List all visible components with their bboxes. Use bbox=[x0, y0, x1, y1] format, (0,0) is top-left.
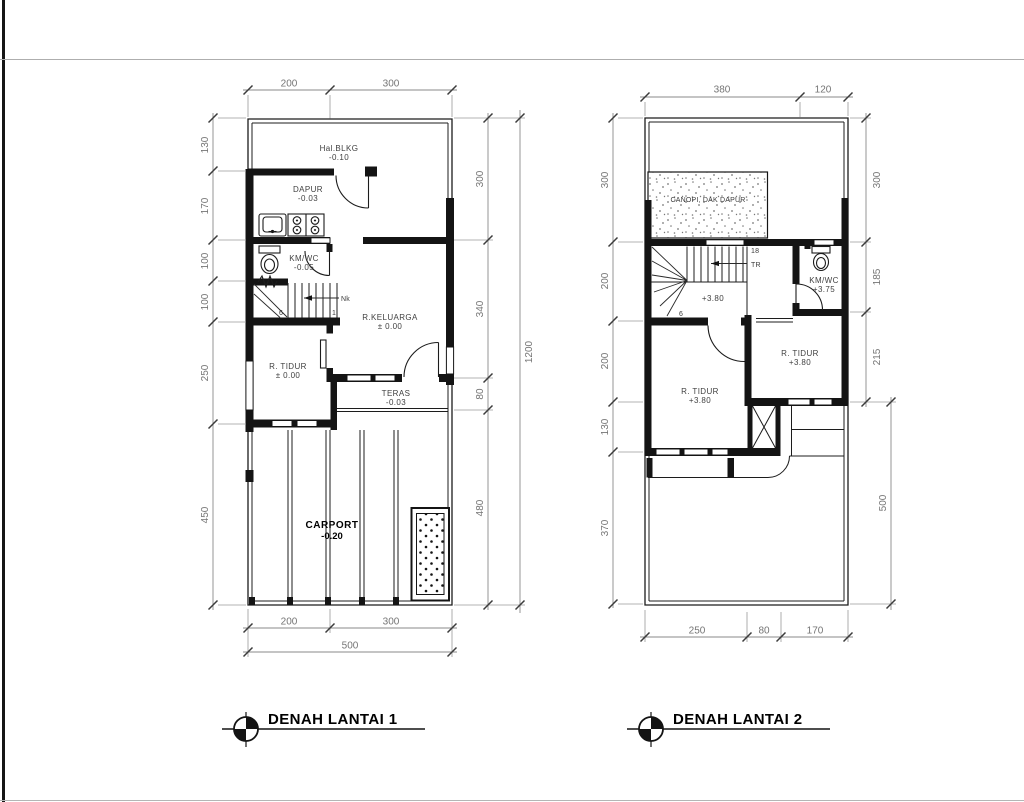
label-stair2-6: 6 bbox=[679, 311, 683, 318]
label-rtidur-right: R. TIDUR bbox=[781, 349, 819, 358]
datum-symbol-icon bbox=[639, 717, 663, 741]
dim-p1-left-130: 130 bbox=[200, 136, 211, 153]
plan1-stairs bbox=[254, 283, 339, 318]
plan2-dim-top: 380 120 bbox=[640, 85, 853, 118]
plan1-dim-left: 130 170 100 100 250 450 bbox=[200, 113, 246, 610]
sheet-border bbox=[0, 0, 1024, 802]
dim-p2-right-185: 185 bbox=[872, 268, 883, 285]
label-carport-level: -0.20 bbox=[321, 531, 343, 542]
plan2-title-block: DENAH LANTAI 2 bbox=[627, 711, 830, 747]
door-rtidur-left bbox=[708, 326, 745, 362]
stove-icon bbox=[288, 214, 324, 236]
label-carport: CARPORT bbox=[306, 520, 359, 531]
dim-p1-bottom-300: 300 bbox=[383, 617, 400, 628]
sink-icon bbox=[259, 214, 286, 236]
dim-p1-top-200: 200 bbox=[281, 79, 298, 90]
dim-p2-right-300: 300 bbox=[872, 171, 883, 188]
dim-p2-left-200b: 200 bbox=[600, 352, 611, 369]
label-hal-blkg: Hal.BLKG bbox=[320, 144, 359, 153]
label-kmwc2: KM/WC bbox=[809, 276, 839, 285]
plan1-dim-top: 200 300 bbox=[243, 79, 457, 119]
door-halblkg bbox=[336, 176, 369, 209]
shaft-cross bbox=[753, 406, 776, 448]
planter-box bbox=[412, 508, 450, 601]
label-stair-18: 18 bbox=[751, 248, 759, 255]
dim-p2-bottom-80: 80 bbox=[758, 626, 770, 637]
dim-p1-left-100a: 100 bbox=[200, 252, 211, 269]
dim-p1-right-300: 300 bbox=[475, 170, 486, 187]
plan1-dim-right: 300 340 80 480 1200 bbox=[454, 110, 535, 613]
dim-p2-bottom-170: 170 bbox=[807, 626, 824, 637]
dim-p2-right-500: 500 bbox=[878, 494, 889, 511]
floor-plan-2: CANOPI, DAK DAPUR KM/WC +3.75 R. TIDUR +… bbox=[600, 85, 896, 643]
label-rkeluarga-level: ± 0.00 bbox=[378, 322, 403, 331]
plan1-carport bbox=[249, 409, 449, 606]
dim-p2-left-370: 370 bbox=[600, 519, 611, 536]
dim-p2-left-300: 300 bbox=[600, 171, 611, 188]
label-teras: TERAS bbox=[382, 389, 411, 398]
label-dapur-level: -0.03 bbox=[298, 194, 318, 203]
label-stair-6: 6 bbox=[279, 310, 283, 317]
label-teras-level: -0.03 bbox=[386, 398, 406, 407]
dim-p1-left-100b: 100 bbox=[200, 293, 211, 310]
label-canopi: CANOPI, DAK DAPUR bbox=[671, 197, 746, 204]
dim-p1-bottom-500: 500 bbox=[342, 641, 359, 652]
plan2-canopy bbox=[648, 172, 768, 238]
label-hal-blkg-level: -0.10 bbox=[329, 153, 349, 162]
plan1-title: DENAH LANTAI 1 bbox=[268, 711, 398, 728]
label-rtidur1: R. TIDUR bbox=[269, 362, 307, 371]
label-rkeluarga: R.KELUARGA bbox=[362, 313, 418, 322]
plan1-dim-bottom: 200 300 500 bbox=[243, 609, 457, 657]
label-rtidur-right-level: +3.80 bbox=[789, 358, 811, 367]
dim-p1-right-80: 80 bbox=[475, 388, 486, 400]
plan2-dim-right: 300 185 215 500 bbox=[850, 113, 896, 610]
plan1-room-labels: Hal.BLKG -0.10 DAPUR -0.03 KM/WC -0.05 R… bbox=[269, 144, 418, 542]
dim-p1-bottom-200: 200 bbox=[281, 617, 298, 628]
dim-p2-top-380: 380 bbox=[714, 85, 731, 96]
label-rtidur1-level: ± 0.00 bbox=[276, 371, 301, 380]
door-rtidur1 bbox=[321, 340, 327, 368]
label-rtidur-left-level: +3.80 bbox=[689, 396, 711, 405]
plan1-kitchen-fixtures bbox=[259, 214, 324, 236]
dim-p2-bottom-250: 250 bbox=[689, 626, 706, 637]
dim-p1-top-300: 300 bbox=[383, 79, 400, 90]
dim-p2-right-215: 215 bbox=[872, 348, 883, 365]
dim-p2-left-130: 130 bbox=[600, 418, 611, 435]
dim-p1-right-480: 480 bbox=[475, 499, 486, 516]
plan1-doors bbox=[305, 176, 439, 378]
floorplan-drawing: Hal.BLKG -0.10 DAPUR -0.03 KM/WC -0.05 R… bbox=[0, 0, 1024, 802]
toilet-icon bbox=[249, 246, 280, 274]
dim-p1-left-250: 250 bbox=[200, 364, 211, 381]
label-rtidur-left: R. TIDUR bbox=[681, 387, 719, 396]
door-teras bbox=[404, 343, 439, 378]
label-stair-tr: TR bbox=[751, 262, 761, 269]
floor-plan-1: Hal.BLKG -0.10 DAPUR -0.03 KM/WC -0.05 R… bbox=[200, 79, 535, 658]
dim-p2-top-120: 120 bbox=[815, 85, 832, 96]
dim-p1-right-1200: 1200 bbox=[524, 340, 535, 363]
label-kmwc1-level: -0.05 bbox=[294, 263, 314, 272]
plan2-dim-left: 300 200 200 130 370 bbox=[600, 113, 643, 609]
label-landing-level: +3.80 bbox=[702, 294, 724, 303]
dim-p2-left-200a: 200 bbox=[600, 272, 611, 289]
label-kmwc2-level: +3.75 bbox=[813, 285, 835, 294]
plan1-title-block: DENAH LANTAI 1 bbox=[222, 711, 425, 747]
dim-p1-right-340: 340 bbox=[475, 300, 486, 317]
plan2-stairs bbox=[651, 247, 747, 317]
dim-p1-left-170: 170 bbox=[200, 197, 211, 214]
label-nk: Nk bbox=[341, 296, 350, 303]
label-stair-1: 1 bbox=[332, 310, 336, 317]
plan2-lower-deck bbox=[647, 406, 845, 478]
label-dapur: DAPUR bbox=[293, 185, 323, 194]
datum-symbol-icon bbox=[234, 717, 258, 741]
drawing-sheet: Hal.BLKG -0.10 DAPUR -0.03 KM/WC -0.05 R… bbox=[0, 0, 1024, 802]
stair-direction-arrow bbox=[304, 295, 312, 301]
plan2-title: DENAH LANTAI 2 bbox=[673, 711, 803, 728]
toilet2-icon bbox=[805, 243, 831, 271]
plan2-dim-bottom: 250 80 170 bbox=[640, 610, 853, 642]
plan2-bathroom-fixtures bbox=[805, 243, 831, 271]
label-kmwc1: KM/WC bbox=[289, 254, 319, 263]
dim-p1-left-450: 450 bbox=[200, 506, 211, 523]
sheet-border-left bbox=[2, 0, 5, 802]
